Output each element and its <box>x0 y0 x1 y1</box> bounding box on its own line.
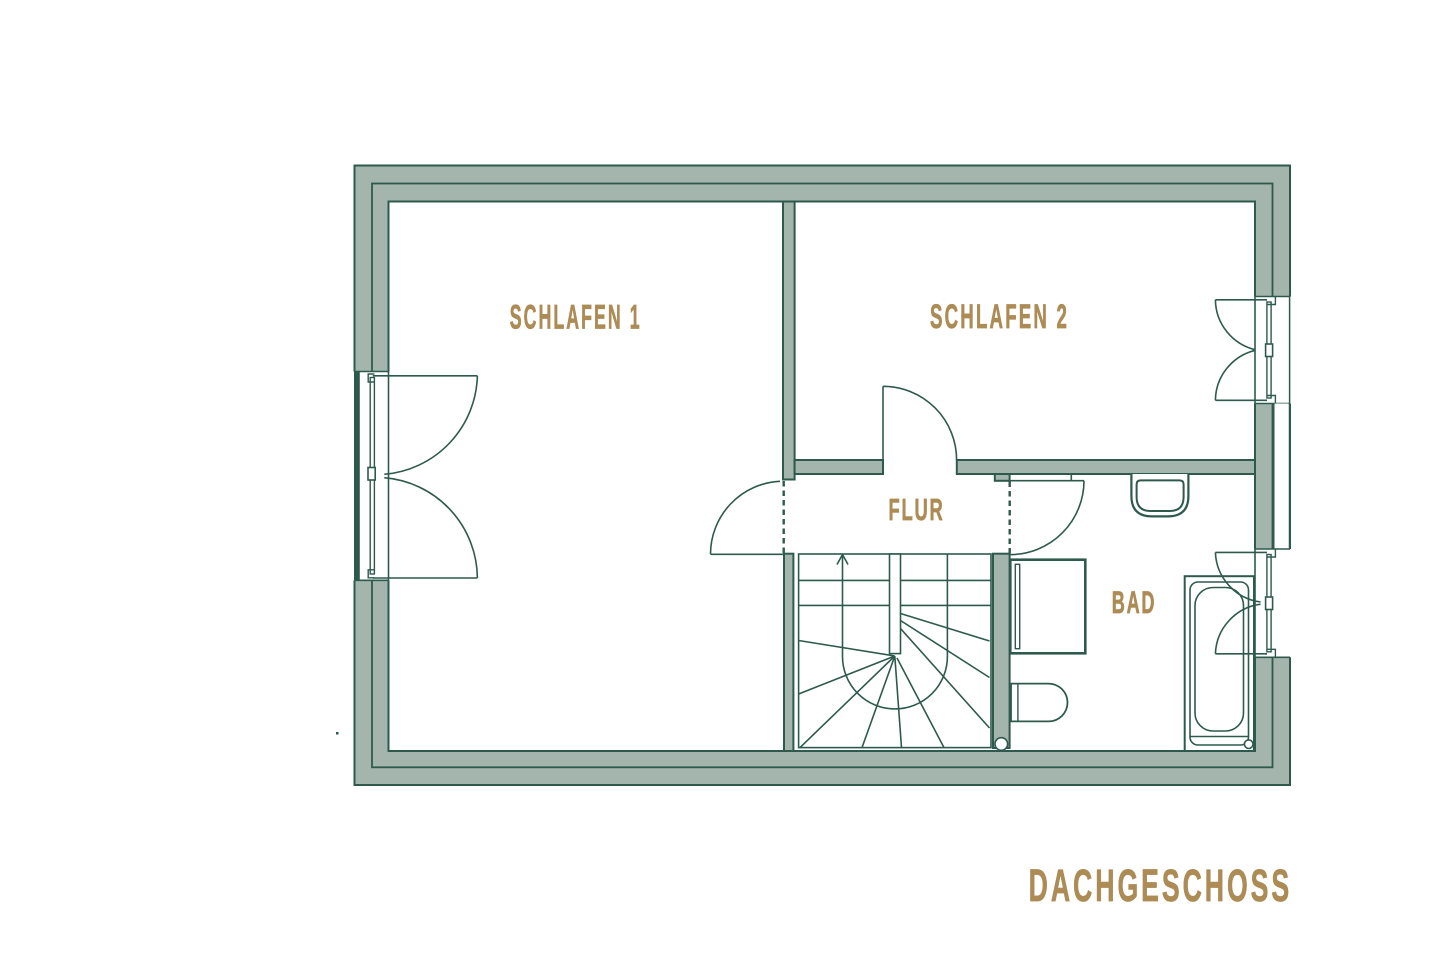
svg-text:DACHGESCHOSS: DACHGESCHOSS <box>1029 860 1293 911</box>
svg-text:BAD: BAD <box>1112 585 1157 620</box>
svg-text:FLUR: FLUR <box>889 492 945 527</box>
svg-text:SCHLAFEN 2: SCHLAFEN 2 <box>930 298 1069 336</box>
svg-text:SCHLAFEN 1: SCHLAFEN 1 <box>510 299 642 337</box>
